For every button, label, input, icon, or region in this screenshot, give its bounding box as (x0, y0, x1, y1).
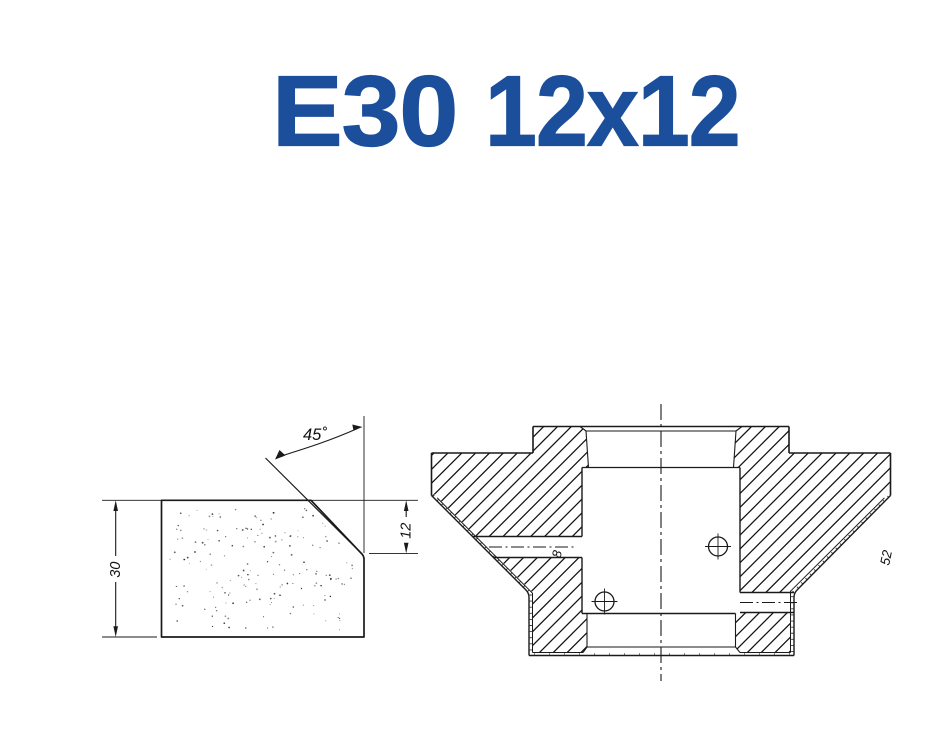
svg-text:52: 52 (877, 548, 895, 566)
svg-text:45˚: 45˚ (303, 426, 327, 444)
svg-text:30: 30 (108, 562, 124, 578)
svg-text:8: 8 (549, 548, 565, 559)
svg-text:12: 12 (398, 523, 414, 539)
